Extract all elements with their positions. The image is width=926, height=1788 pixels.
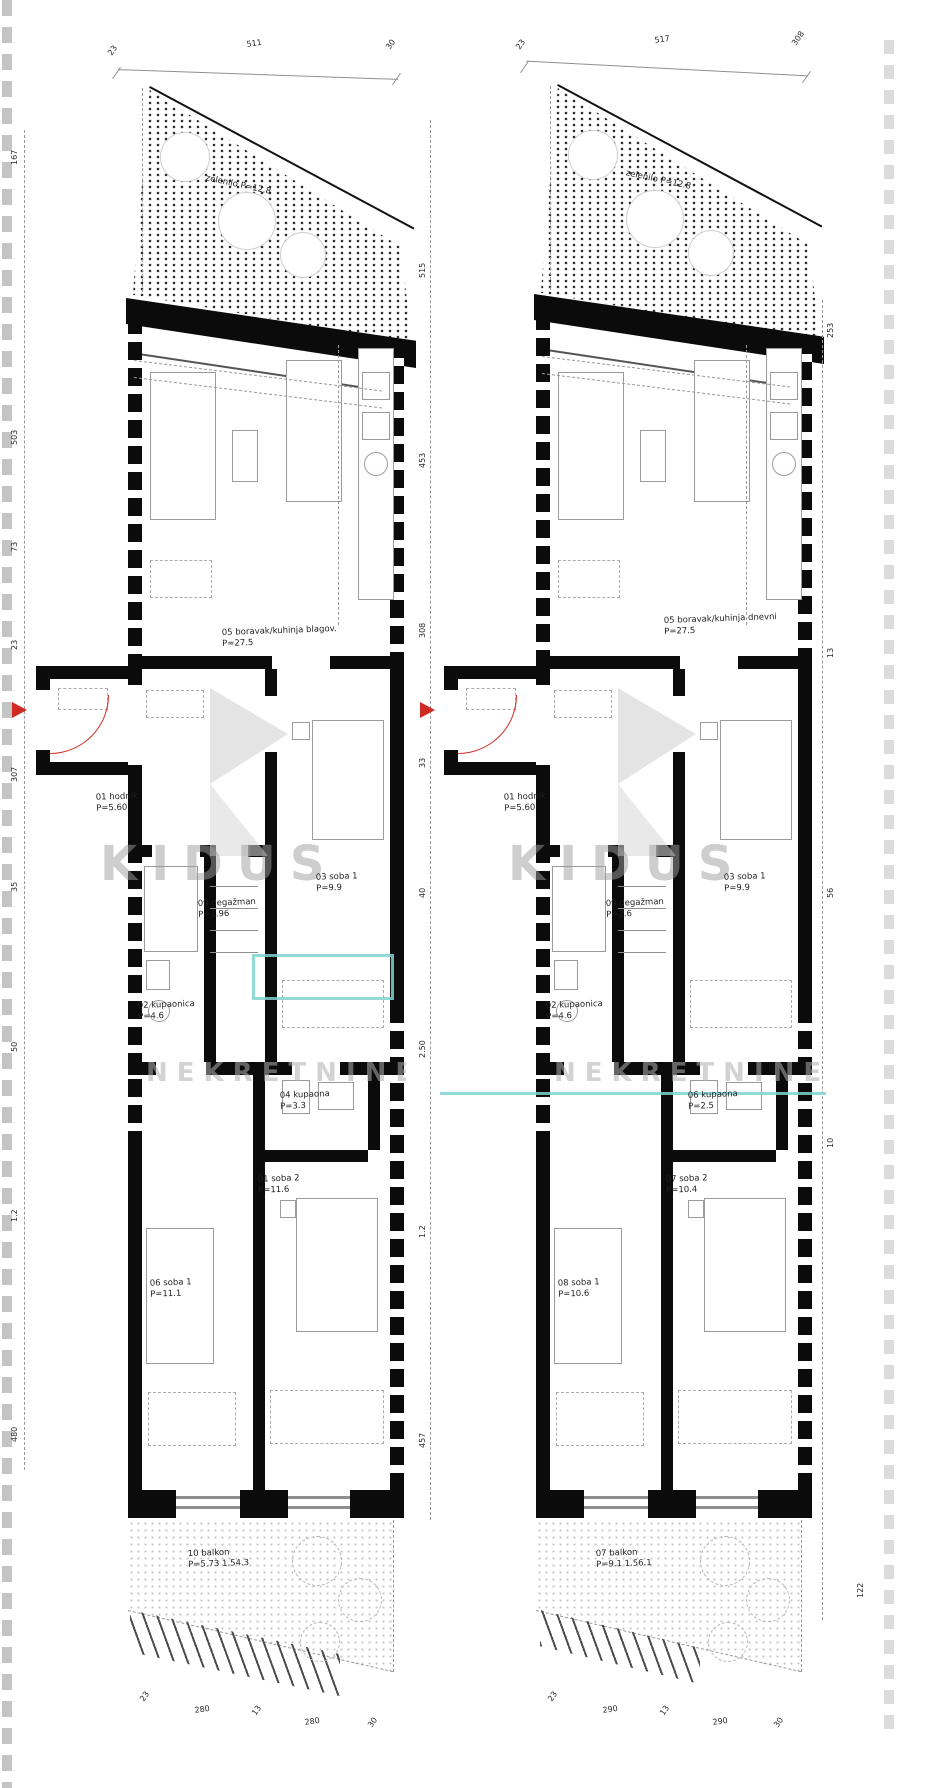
dim-number: 56 [826, 888, 835, 898]
room-name: 01 soba 2 [258, 1173, 300, 1184]
room-area: P=4.6 [546, 1010, 603, 1023]
dim-number: 453 [418, 453, 427, 468]
sink-basin [772, 452, 796, 476]
room-area: P=9.9 [724, 882, 766, 895]
entry-door-swing-arc [458, 695, 517, 754]
room-label-wc: 06 kupaona P=2.5 [688, 1089, 739, 1113]
dim-number: 23 [10, 640, 19, 650]
roof-plant [568, 130, 618, 180]
dimension-tick [520, 61, 529, 73]
room-name: 10 balkon [188, 1548, 230, 1559]
rug [558, 560, 620, 598]
dim-number: 10 [826, 1138, 835, 1148]
room-label-degazman: 09 degažman P=2.6 [606, 897, 665, 921]
sofa [558, 372, 624, 520]
wall-wc [673, 1150, 776, 1162]
room-name: 07 balkon [596, 1548, 638, 1559]
wall-bottom [536, 1490, 584, 1518]
roof-plant [626, 190, 684, 248]
balcony-plant [700, 1536, 750, 1586]
dim-number: 13 [826, 648, 835, 658]
vestibule-wall-left [444, 666, 458, 690]
dim-number: 290 [712, 1716, 728, 1727]
dim-number: 517 [654, 34, 670, 45]
room-name: 01 hodnik [96, 791, 139, 802]
dim-number: 515 [418, 263, 427, 278]
room-area: P=11.6 [258, 1184, 300, 1197]
room-label-hall: 01 hodnik P=5.60 [504, 791, 547, 815]
dim-number: 480 [10, 1427, 19, 1442]
bed [704, 1198, 786, 1332]
dimension-line-top [526, 61, 808, 77]
room-area: P=2.5 [688, 1100, 738, 1113]
balcony-edge-dashed [801, 1520, 802, 1672]
room-area: P=11.1 [150, 1288, 192, 1301]
room-label-soba2: 07 soba 2 P=10.4 [666, 1173, 709, 1197]
balcony-plant [746, 1578, 790, 1622]
room-label-soba3: 06 soba 1 P=11.1 [150, 1277, 193, 1301]
nightstand [700, 722, 718, 740]
nightstand [688, 1200, 704, 1218]
window-glass-line [584, 1496, 648, 1499]
window-glass-line [584, 1506, 648, 1509]
vestibule-wall-left [444, 750, 458, 775]
dim-number: 2.50 [418, 1040, 427, 1058]
room-area: P=5.60 [96, 802, 139, 815]
room-name: 02 kupaonica [546, 999, 603, 1011]
room-area: P=1.96 [198, 908, 256, 921]
watermark-subtitle-right: NEKRETNINE [554, 1058, 826, 1088]
dim-number: 40 [418, 888, 427, 898]
dim-number: 30 [772, 1716, 785, 1730]
dim-number: 23 [514, 38, 527, 52]
coffee-table [640, 430, 666, 482]
room-label-wc: 04 kupaona P=3.3 [280, 1089, 331, 1113]
room-name: 07 soba 2 [666, 1173, 708, 1184]
room-area: P=2.6 [606, 908, 664, 921]
room-name: 06 kupaona [688, 1089, 738, 1101]
room-label-bath: 02 kupaonica P=4.6 [546, 999, 604, 1023]
toilet [554, 960, 578, 990]
room-name: 03 soba 1 [316, 871, 358, 882]
watermark-accent-line [440, 1092, 826, 1095]
room-label-hall: 01 hodnik P=5.60 [96, 791, 139, 815]
room-label-soba3: 08 soba 1 P=10.6 [558, 1277, 601, 1301]
shelf-line [618, 930, 666, 931]
dimension-tick [802, 71, 811, 83]
watermark-logo-icon [598, 688, 702, 856]
wall-left [536, 1145, 550, 1490]
wall-living-divider [738, 656, 806, 669]
wall-bottom [648, 1490, 696, 1518]
wall-right [798, 660, 812, 1005]
wall-bedroom-split [661, 1075, 673, 1490]
window-glass-line [696, 1496, 758, 1499]
room-label-balcony: 07 balkon P=9.1 1.56.1 [596, 1547, 652, 1571]
dim-number: 308 [418, 623, 427, 638]
room-name: 02 kupaonica [138, 999, 195, 1011]
wall-living-divider [536, 656, 680, 669]
roof-plant [688, 230, 734, 276]
room-label-soba2: 01 soba 2 P=11.6 [258, 1173, 301, 1197]
watermark-subtitle-left: NEKRETNINE [146, 1058, 406, 1088]
room-name: 04 kupaona [280, 1089, 330, 1101]
room-area: P=3.3 [280, 1100, 330, 1113]
wall-left [536, 668, 550, 685]
room-label-soba1: 03 soba 1 P=9.9 [724, 871, 767, 895]
wardrobe [556, 1392, 644, 1446]
room-label-soba1: 03 soba 1 P=9.9 [316, 871, 359, 895]
room-name: 08 soba 1 [558, 1277, 600, 1288]
room-label-degazman: 09 degažman P=1.96 [198, 897, 257, 921]
dim-number: 73 [10, 542, 19, 552]
room-area: P=9.1 1.56.1 [596, 1558, 652, 1571]
room-name: 09 degažman [198, 897, 256, 909]
entry-arrow-icon [420, 702, 435, 718]
dim-number: 35 [10, 882, 19, 892]
dim-number: 33 [418, 758, 427, 768]
dim-number: 457 [418, 1433, 427, 1448]
dim-number: 503 [10, 430, 19, 445]
room-area: P=10.4 [666, 1184, 708, 1197]
room-name: 06 soba 1 [150, 1277, 192, 1288]
wardrobe [678, 1390, 792, 1444]
room-label-living: 05 boravak/kuhinja blagov. P=27.5 [222, 624, 338, 650]
wardrobe [690, 980, 792, 1028]
bed [720, 720, 792, 840]
dim-number: 308 [790, 29, 806, 47]
balcony-plant [708, 1622, 748, 1662]
dim-number: 13 [658, 1704, 671, 1718]
shelf-line [618, 952, 666, 953]
room-label-balcony: 10 balkon P=5.73 1.54.3 [188, 1547, 250, 1571]
room-name: 01 hodnik [504, 791, 547, 802]
watermark-word-right: KIDUS [508, 836, 828, 892]
room-name: 09 degažman [606, 897, 664, 909]
entry-arrow-icon [12, 702, 27, 718]
dimension-line-mid [430, 120, 431, 1520]
dim-number: 1.2 [418, 1225, 427, 1238]
room-label-living: 05 boravak/kuhinja dnevni P=27.5 [664, 612, 778, 638]
watermark-accent-box [252, 954, 394, 1000]
dim-number: 167 [10, 150, 19, 165]
room-area: P=4.6 [138, 1010, 195, 1023]
dim-number: 1.2 [10, 1209, 19, 1222]
wall-bottom [758, 1490, 812, 1518]
sink [770, 412, 798, 440]
dim-number: 50 [10, 1042, 19, 1052]
room-area: P=9.9 [316, 882, 358, 895]
room-name: 03 soba 1 [724, 871, 766, 882]
dim-number: 290 [602, 1704, 618, 1715]
floorplan-scan: 23 511 30 zelenilo P=12.8 [0, 0, 926, 1788]
dim-number: 122 [856, 1583, 865, 1598]
window-glass-line [696, 1506, 758, 1509]
room-label-bath: 02 kupaonica P=4.6 [138, 999, 196, 1023]
room-area: P=5.60 [504, 802, 547, 815]
room-area: P=10.6 [558, 1288, 600, 1301]
dim-number: 23 [546, 1690, 559, 1704]
roof-boundary-dashed [550, 86, 551, 290]
floorplan-right: 23 517 308 zelenilo P=12.8 [0, 0, 926, 1788]
projection-dashed [746, 345, 747, 625]
dim-number: 253 [826, 323, 835, 338]
dimension-line-right [822, 300, 823, 1620]
room-area: P=5.73 1.54.3 [188, 1558, 249, 1571]
wall-left [536, 312, 550, 668]
watermark-logo-icon [190, 688, 294, 856]
dim-number: 307 [10, 767, 19, 782]
